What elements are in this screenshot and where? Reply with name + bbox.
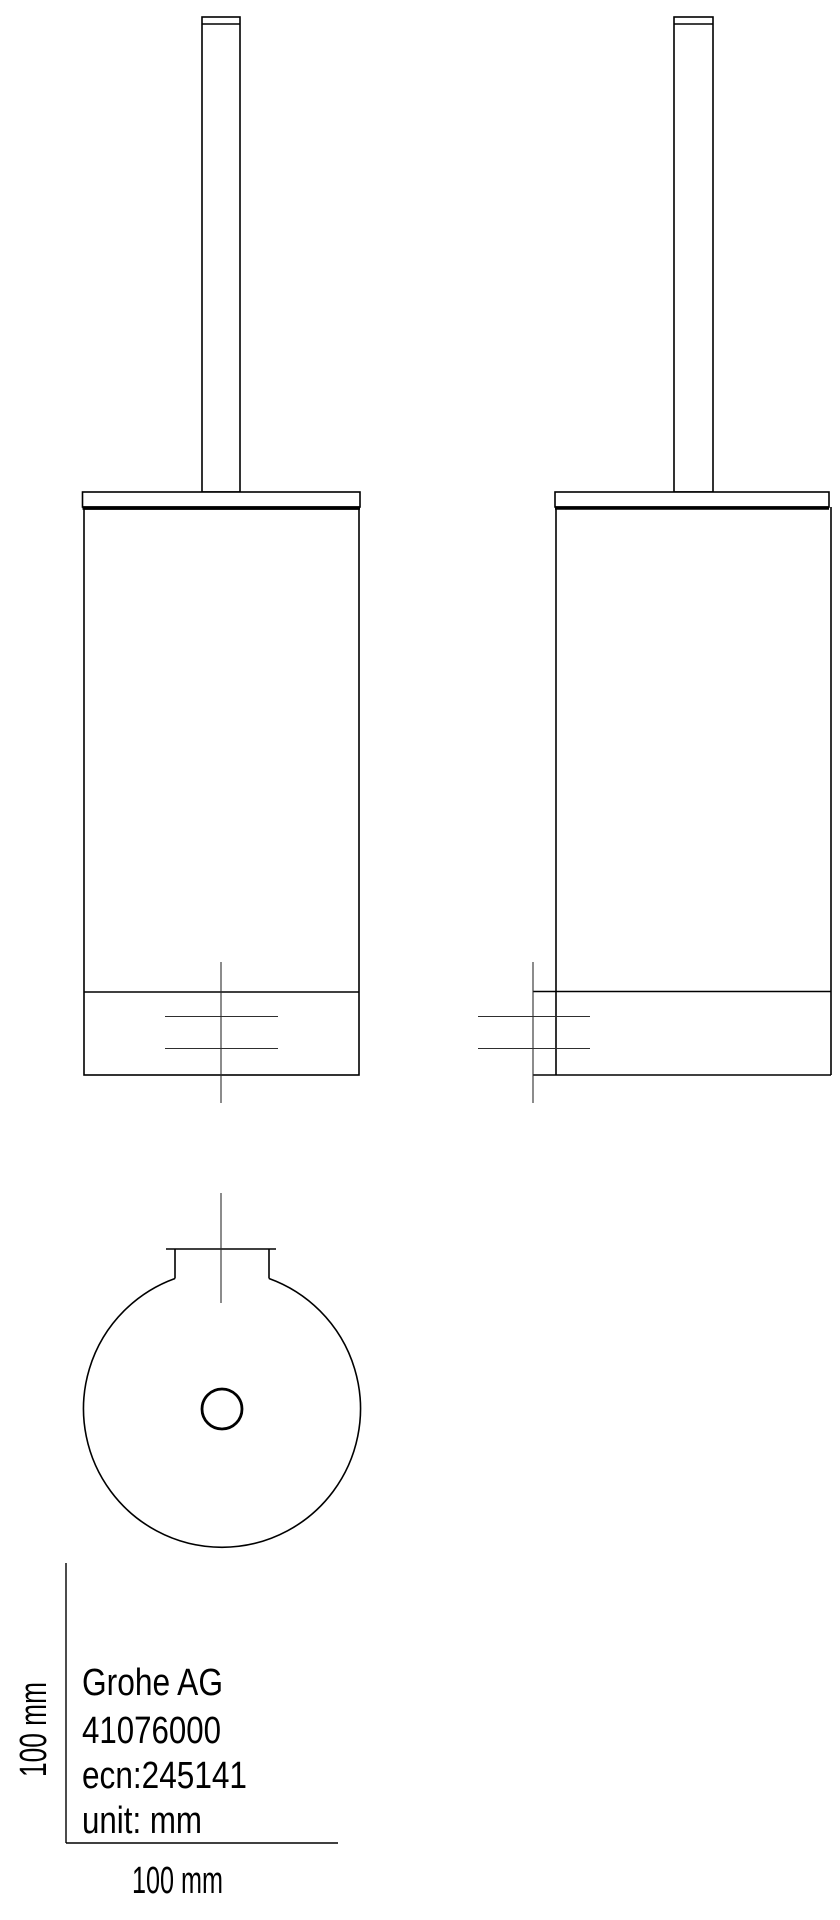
front-lid [83,492,361,507]
title-block: Grohe AG 41076000 ecn:245141 unit: mm [82,1662,247,1842]
technical-drawing-page: Grohe AG 41076000 ecn:245141 unit: mm 10… [0,0,840,1920]
ecn-label: ecn:245141 [82,1755,247,1797]
side-lid [555,492,829,507]
top-view [84,1193,361,1547]
unit-label: unit: mm [82,1800,202,1842]
scale-vertical-label: 100 mm [13,1682,55,1777]
top-rod-circle [202,1389,242,1429]
front-handle-rod [202,17,240,492]
scale-horizontal-label: 100 mm [132,1860,223,1902]
drawing-canvas: Grohe AG 41076000 ecn:245141 unit: mm 10… [0,0,840,1920]
side-view [478,17,831,1103]
manufacturer-label: Grohe AG [82,1662,223,1704]
side-handle-rod [674,17,713,492]
front-view [83,17,361,1103]
product-code-label: 41076000 [82,1710,221,1752]
top-body-circle [84,1279,361,1548]
